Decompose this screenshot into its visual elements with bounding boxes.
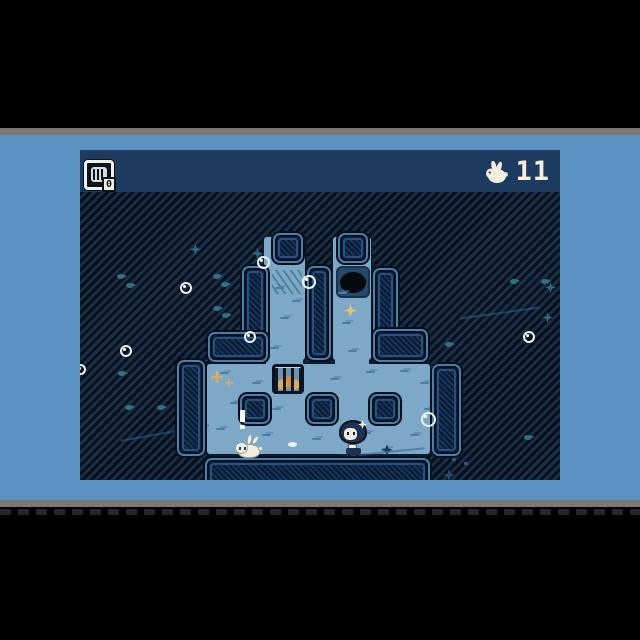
wave-mark (280, 317, 289, 319)
wave-mark (270, 347, 279, 349)
bunny-actor (235, 436, 263, 460)
page-background: 0 11 (0, 135, 640, 500)
wall-block (432, 364, 461, 456)
fish-decoration (541, 279, 548, 284)
wave-mark (252, 382, 261, 384)
player-feet (348, 455, 351, 457)
wave-mark (220, 372, 229, 374)
exclamation-mark (240, 410, 246, 430)
wall-block (177, 360, 205, 456)
fish-decoration (510, 279, 517, 284)
bubble-decoration (120, 345, 132, 357)
game-map (80, 192, 560, 480)
fish-decoration (445, 342, 452, 347)
path-joint (335, 358, 369, 366)
player-skirt (346, 448, 361, 455)
top-separator-bar (0, 128, 640, 135)
fish-decoration (118, 371, 125, 376)
speck-decoration (452, 458, 456, 461)
bunny-icon (484, 161, 508, 184)
fish-decoration (126, 283, 133, 288)
wall-block (205, 458, 430, 480)
fish-decoration (221, 282, 228, 287)
wall-block (273, 233, 303, 263)
wave-mark (272, 408, 281, 410)
wave-mark (338, 292, 347, 294)
wave-mark (312, 438, 321, 440)
wave-mark (410, 434, 419, 436)
top-letterbox (0, 0, 640, 128)
cage-count-label: 0 (102, 177, 116, 192)
star-decoration (443, 469, 455, 480)
bubble-decoration (302, 275, 316, 289)
fish-decoration (213, 274, 220, 279)
fish-decoration (125, 405, 132, 410)
wall-block (370, 394, 400, 424)
cage-counter: 0 (84, 160, 118, 192)
wave-mark (342, 322, 351, 324)
wave-mark (292, 300, 301, 302)
player-actor (338, 418, 370, 458)
caustic-streak (460, 306, 539, 319)
bottom-letterbox (0, 507, 640, 640)
fish-decoration (157, 405, 164, 410)
fish-decoration (213, 306, 220, 311)
player-eyes (347, 432, 349, 435)
bubble-decoration (421, 412, 436, 427)
bubble-decoration (244, 331, 256, 343)
bunny-counter: 11 (484, 159, 550, 185)
wall-block (307, 394, 337, 424)
star-decoration (542, 312, 553, 323)
bunny-head (235, 442, 248, 454)
player-face (344, 428, 357, 440)
game-viewport[interactable]: 0 11 (80, 150, 560, 480)
wall-block (373, 329, 428, 362)
bunny-eye (239, 447, 241, 450)
pebble-decoration (288, 442, 297, 447)
bunny-cage (272, 364, 304, 394)
wave-mark (262, 434, 271, 436)
wave-mark (420, 382, 429, 384)
wave-mark (216, 428, 225, 430)
exclamation-dot (240, 425, 245, 429)
wave-mark (400, 370, 409, 372)
bubble-decoration (180, 282, 192, 294)
fish-decoration (524, 435, 531, 440)
bottom-dash-row (0, 509, 640, 515)
screen: 0 11 (0, 0, 640, 640)
wave-mark (230, 402, 239, 404)
wall-block (208, 332, 268, 362)
wave-mark (348, 350, 357, 352)
speck-decoration (464, 462, 468, 465)
bunny-count-label: 11 (515, 159, 550, 185)
bubble-decoration (257, 256, 270, 269)
star-decoration (190, 244, 201, 255)
bubble-decoration (80, 364, 86, 375)
fish-decoration (222, 313, 229, 318)
current-scribble (272, 270, 302, 294)
wave-mark (366, 371, 375, 373)
exclamation-bar (240, 410, 245, 422)
wave-mark (330, 378, 339, 380)
hud-band: 0 11 (80, 150, 560, 192)
fish-decoration (117, 274, 124, 279)
bottom-separator-bar (0, 500, 640, 507)
bunny-tail (258, 446, 263, 451)
bubble-decoration (523, 331, 535, 343)
wall-block (338, 233, 368, 263)
